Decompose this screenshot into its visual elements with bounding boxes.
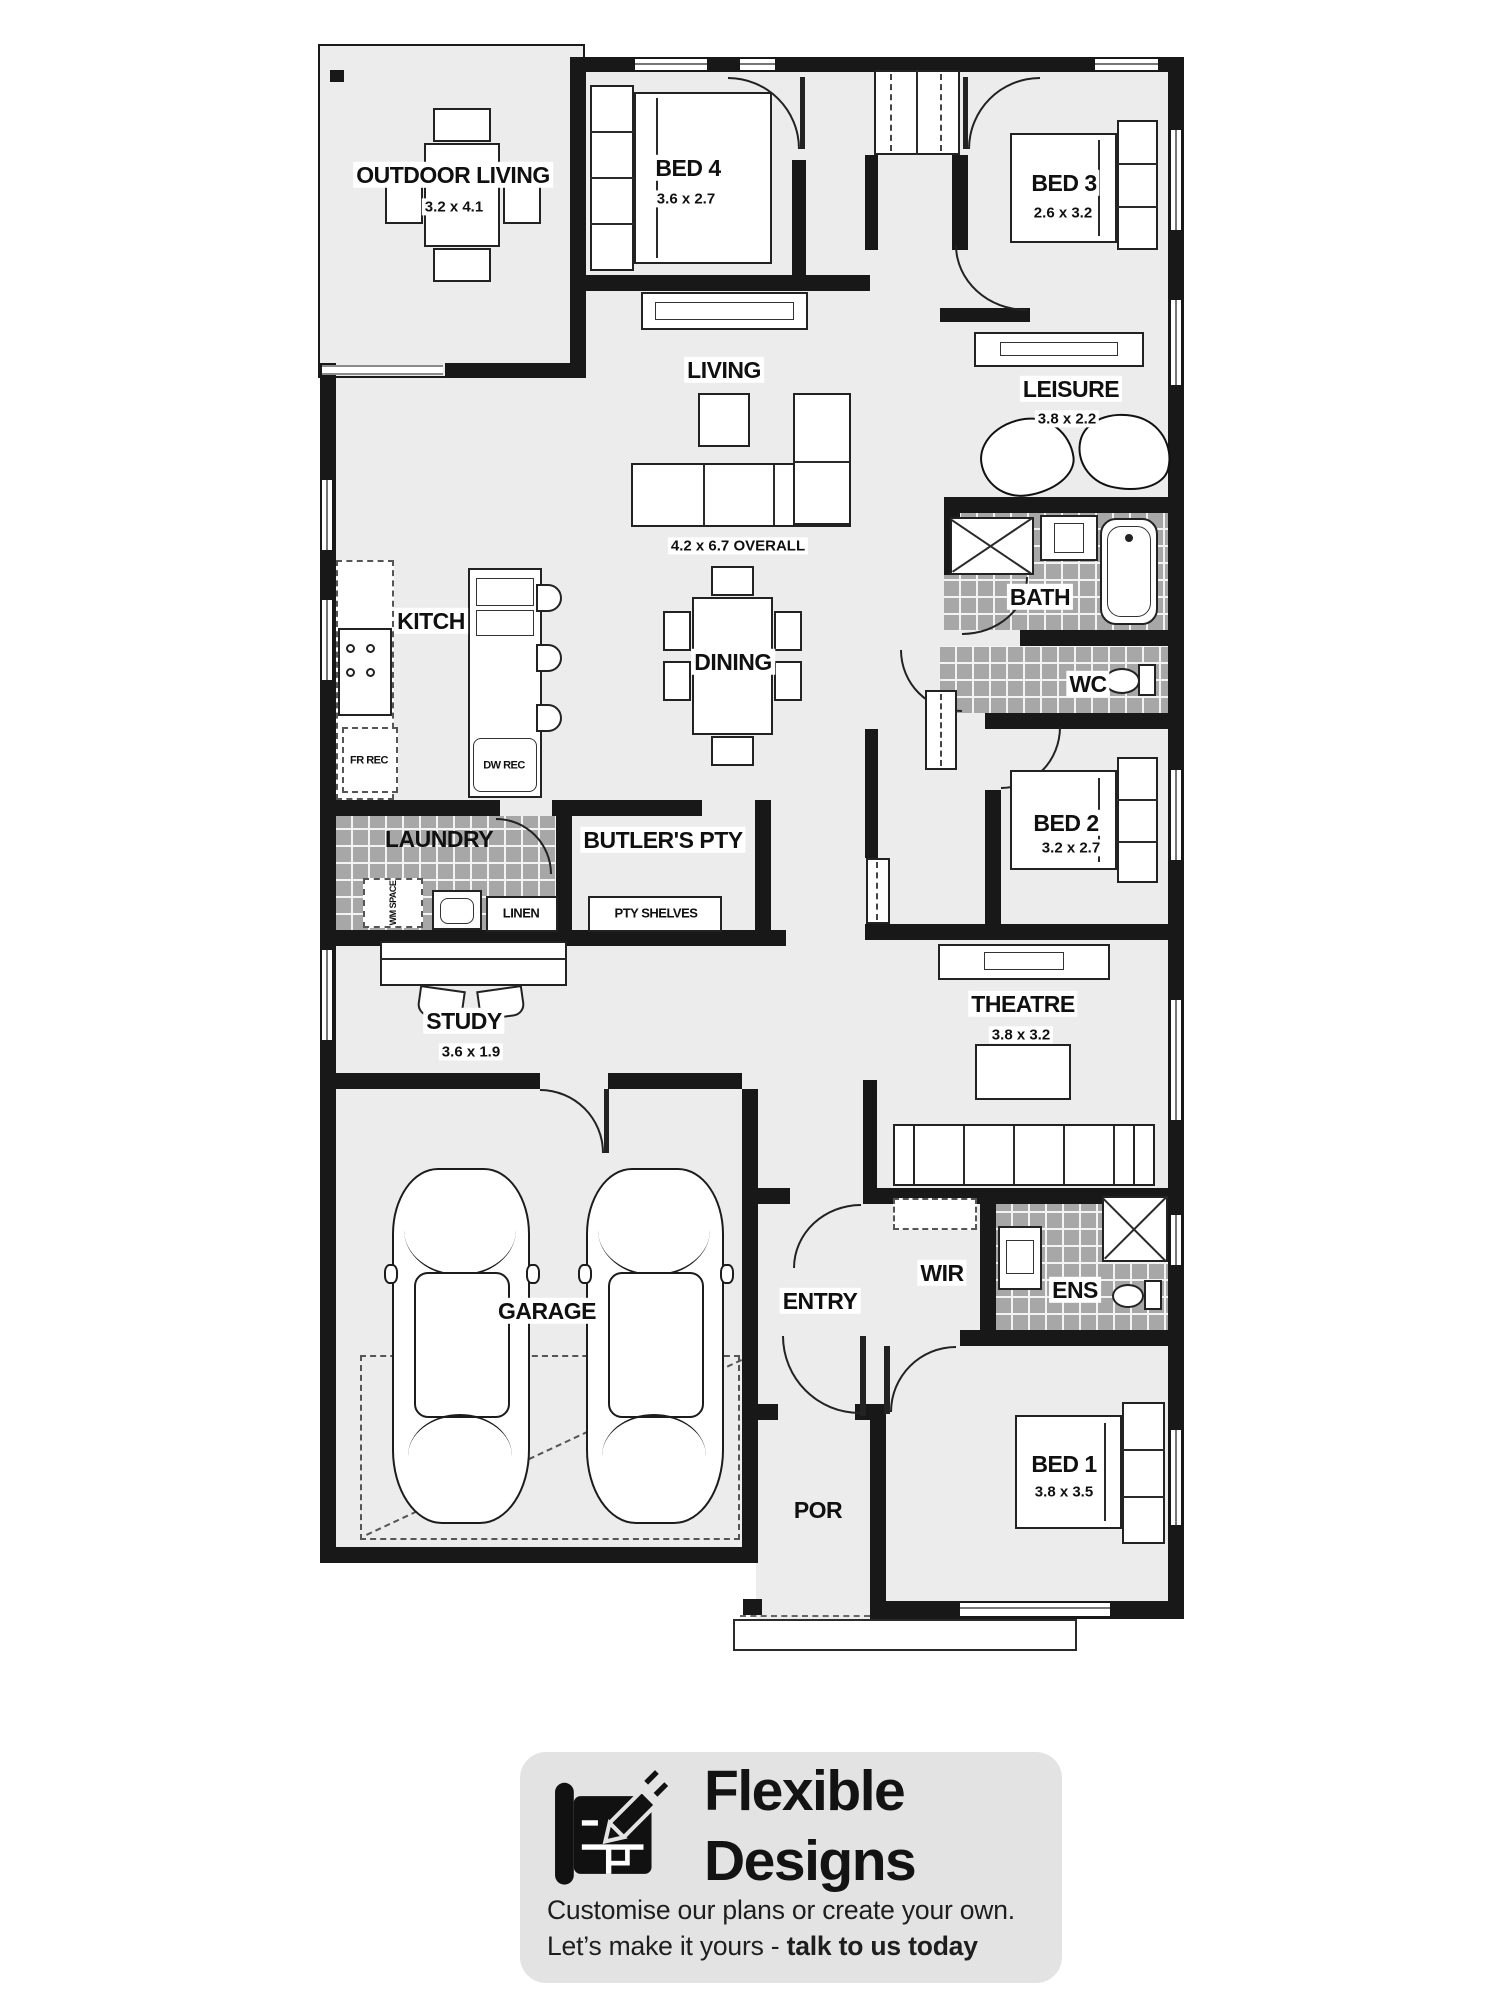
cupboard-rail [876,862,878,920]
room-dims-bed4: 3.6 x 2.7 [654,190,718,207]
wall [556,816,572,930]
car-mirror [578,1264,592,1284]
wall [755,800,771,935]
room-dims-leisure: 3.8 x 2.2 [1035,410,1099,427]
room-dims-outdoor-living: 3.2 x 4.1 [422,198,486,215]
window [740,59,775,70]
shelf-line [590,131,634,133]
room-label-outdoor-living: OUTDOOR LIVING [353,162,553,188]
sofa-seam [1113,1126,1115,1184]
sofa-seam [703,465,705,525]
dining-chair [711,736,754,766]
outdoor-chair [433,248,491,282]
porch-pillar [743,1599,762,1615]
car-mirror [720,1264,734,1284]
footer-tagline: Customise our plans or create your own. [547,1892,1057,1928]
footer-cta-line: Let’s make it yours - talk to us today [547,1928,1057,1964]
shelf-line [1117,799,1158,801]
robe-rail [940,74,942,151]
toilet [1112,1284,1144,1308]
sofa-arm [893,1124,915,1186]
brand-line1: Flexible [704,1756,915,1826]
wir-shelf [893,1198,977,1230]
footer-card: Flexible Designs Customise our plans or … [520,1752,1062,1983]
window [1171,1430,1181,1525]
wall [960,1330,1168,1346]
room-dims-bed3: 2.6 x 3.2 [1031,204,1095,221]
ottoman [975,1044,1071,1100]
island-sink [476,610,534,636]
sofa-arm [1133,1124,1155,1186]
room-label-butlers-pty: BUTLER'S PTY [580,827,745,853]
vanity-basin [1006,1240,1034,1274]
dining-chair [774,661,802,701]
wall [865,924,1168,940]
car-mirror [384,1264,398,1284]
window [1171,1215,1181,1265]
outdoor-table [424,143,500,247]
shelf-line [1117,163,1158,165]
room-label-porch: POR [791,1497,845,1523]
desk-line [380,958,567,960]
theatre-sofa [893,1124,1155,1186]
tv-unit-inner [1000,342,1118,356]
exterior-mask [562,1563,756,1619]
wall [608,1073,742,1089]
wall [320,1073,540,1089]
room-label-bed3: BED 3 [1028,170,1099,196]
footer-taglines: Customise our plans or create your own. … [547,1892,1057,1964]
wall [445,363,586,378]
wall [865,155,878,250]
room-label-laundry: LAUNDRY [382,826,496,852]
room-label-bed2: BED 2 [1030,810,1101,836]
sofa-seam [1013,1126,1015,1184]
burner [366,644,375,653]
wall [792,160,806,291]
room-dims-study: 3.6 x 1.9 [439,1043,503,1060]
door-leaf [884,1346,890,1414]
room-label-ens: ENS [1049,1277,1101,1303]
burner [366,668,375,677]
blueprint-pencil-icon [544,1764,684,1898]
wall [570,57,586,363]
dining-chair [663,611,691,651]
label-wm-space: WM SPACE [388,878,398,929]
cupboard-rail [940,694,942,766]
wall [552,800,702,816]
vanity-basin [1054,523,1084,553]
bedside-shelf [1122,1402,1165,1544]
side-table [698,393,750,447]
trough-basin [440,898,474,924]
room-label-kitchen: KITCH [394,608,468,634]
room-dims-bed1: 3.8 x 3.5 [1032,1483,1096,1500]
label-fr-rec: FR REC [345,755,393,768]
room-label-dining: DINING [691,649,775,675]
room-label-wc: WC [1066,671,1109,697]
door-leaf [963,77,968,149]
room-dims-living: 4.2 x 6.7 OVERALL [668,537,808,554]
burner [346,668,355,677]
tv-unit-inner [655,302,794,320]
room-label-garage: GARAGE [495,1298,599,1324]
shelf-line [590,177,634,179]
pillow-line [1104,1423,1106,1521]
door-leaf [800,77,805,149]
desk [380,941,567,986]
wall [952,155,968,250]
bath-faucet [1125,534,1133,542]
window [322,950,332,1040]
dining-chair [711,566,754,596]
sliding-door [322,365,443,375]
window [1171,300,1181,385]
dining-chair [663,661,691,701]
wall [863,1080,877,1204]
wall [742,1089,758,1563]
room-label-bed4: BED 4 [652,155,723,181]
window [1171,770,1181,860]
window [960,1603,1110,1616]
island-sink [476,578,534,606]
car-roof [608,1272,704,1418]
slab-edge [733,1619,1077,1651]
wall [586,275,870,291]
wall [944,497,1168,513]
room-label-leisure: LEISURE [1020,376,1122,402]
room-dims-bed2: 3.2 x 2.7 [1039,839,1103,856]
sofa-chaise [793,393,851,525]
room-label-wir: WIR [917,1260,966,1286]
wall [870,1420,886,1601]
room-label-theatre: THEATRE [968,991,1077,1017]
room-label-bath: BATH [1007,584,1073,610]
car [392,1168,530,1524]
room-dims-theatre: 3.8 x 3.2 [989,1026,1053,1043]
porch-edge-line [740,1615,870,1617]
label-linen: LINEN [500,907,543,922]
window [1095,59,1158,70]
front-door-leaf [860,1336,866,1416]
toilet-cistern [1138,664,1156,696]
dining-chair [774,611,802,651]
wall [320,1547,750,1563]
shelf-line [1122,1496,1165,1498]
label-pty-shelves: PTY SHELVES [612,907,701,922]
corner-post [330,70,344,82]
robe-divider [916,70,918,155]
sofa-seam [773,465,775,525]
window [322,600,332,680]
room-label-study: STUDY [423,1008,504,1034]
footer-cta-bold[interactable]: talk to us today [787,1931,978,1961]
wall [980,1204,996,1330]
wall [865,729,878,858]
window [322,480,332,550]
toilet-cistern [1144,1280,1162,1310]
shelf-line [1117,841,1158,843]
footer-cta-prefix: Let’s make it yours - [547,1931,787,1961]
wall [742,1404,778,1420]
brand-line2: Designs [704,1826,915,1896]
tv-unit-inner [984,952,1064,970]
room-label-living: LIVING [684,357,764,383]
car-roof [414,1272,510,1418]
bedside-shelf [1117,120,1158,250]
robe-rail [890,74,892,151]
shelf-line [590,223,634,225]
bedside-shelf [1117,757,1158,883]
shelf-line [1117,206,1158,208]
window [1171,1000,1181,1120]
window [635,59,707,70]
car-mirror [526,1264,540,1284]
burner [346,644,355,653]
wall [1020,630,1168,646]
window [1171,130,1181,230]
label-dw-rec: DW REC [480,760,528,773]
wall [336,800,500,816]
shelf-line [1122,1449,1165,1451]
car [586,1168,724,1524]
sofa-seam [795,461,849,463]
room-label-bed1: BED 1 [1028,1451,1099,1477]
brand-title: Flexible Designs [704,1756,915,1896]
hall-cupboard [866,858,890,924]
wall [985,790,1001,924]
sofa-seam [1063,1126,1065,1184]
outdoor-chair [433,108,491,142]
sofa-seam [963,1126,965,1184]
room-label-entry: ENTRY [780,1288,861,1314]
door-leaf [604,1089,609,1153]
